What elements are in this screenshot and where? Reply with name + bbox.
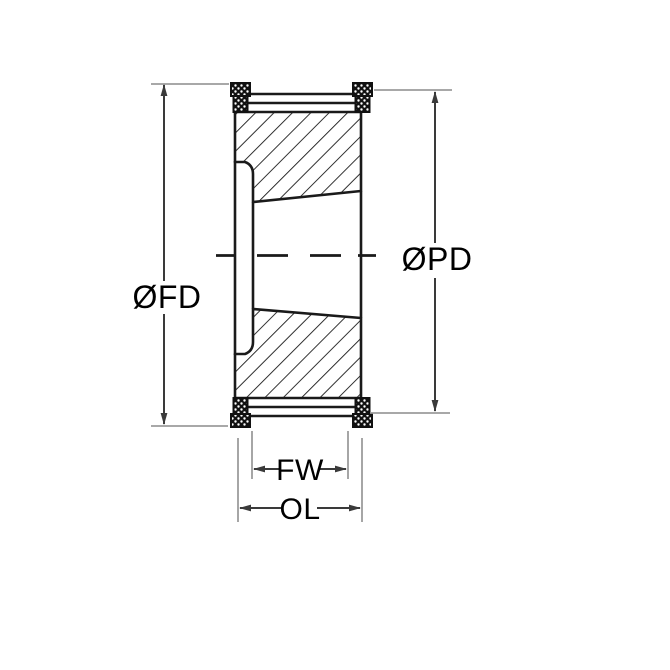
pulley-body <box>235 94 361 416</box>
flange-top-right <box>353 83 372 112</box>
dimension-face-width: FW <box>252 431 348 487</box>
pitch-diameter-label: ØPD <box>402 241 473 277</box>
belt-rim-top <box>247 94 359 103</box>
dimension-pitch-diameter: ØPD <box>370 90 472 413</box>
overall-length-label: OL <box>279 493 320 526</box>
flange-diameter-label: ØFD <box>132 279 201 315</box>
flange-top-left <box>231 83 250 112</box>
flange-bottom-left <box>231 398 250 427</box>
flange-bottom-right <box>353 398 372 427</box>
upper-web-section <box>235 112 361 202</box>
lower-web-section <box>235 309 361 398</box>
face-width-label: FW <box>276 454 324 487</box>
drawing-canvas: ØFD ØPD FW OL <box>0 0 670 670</box>
belt-rim-bottom <box>247 407 359 416</box>
dimension-flange-diameter: ØFD <box>132 84 229 426</box>
pulley-technical-drawing: ØFD ØPD FW OL <box>0 0 670 670</box>
